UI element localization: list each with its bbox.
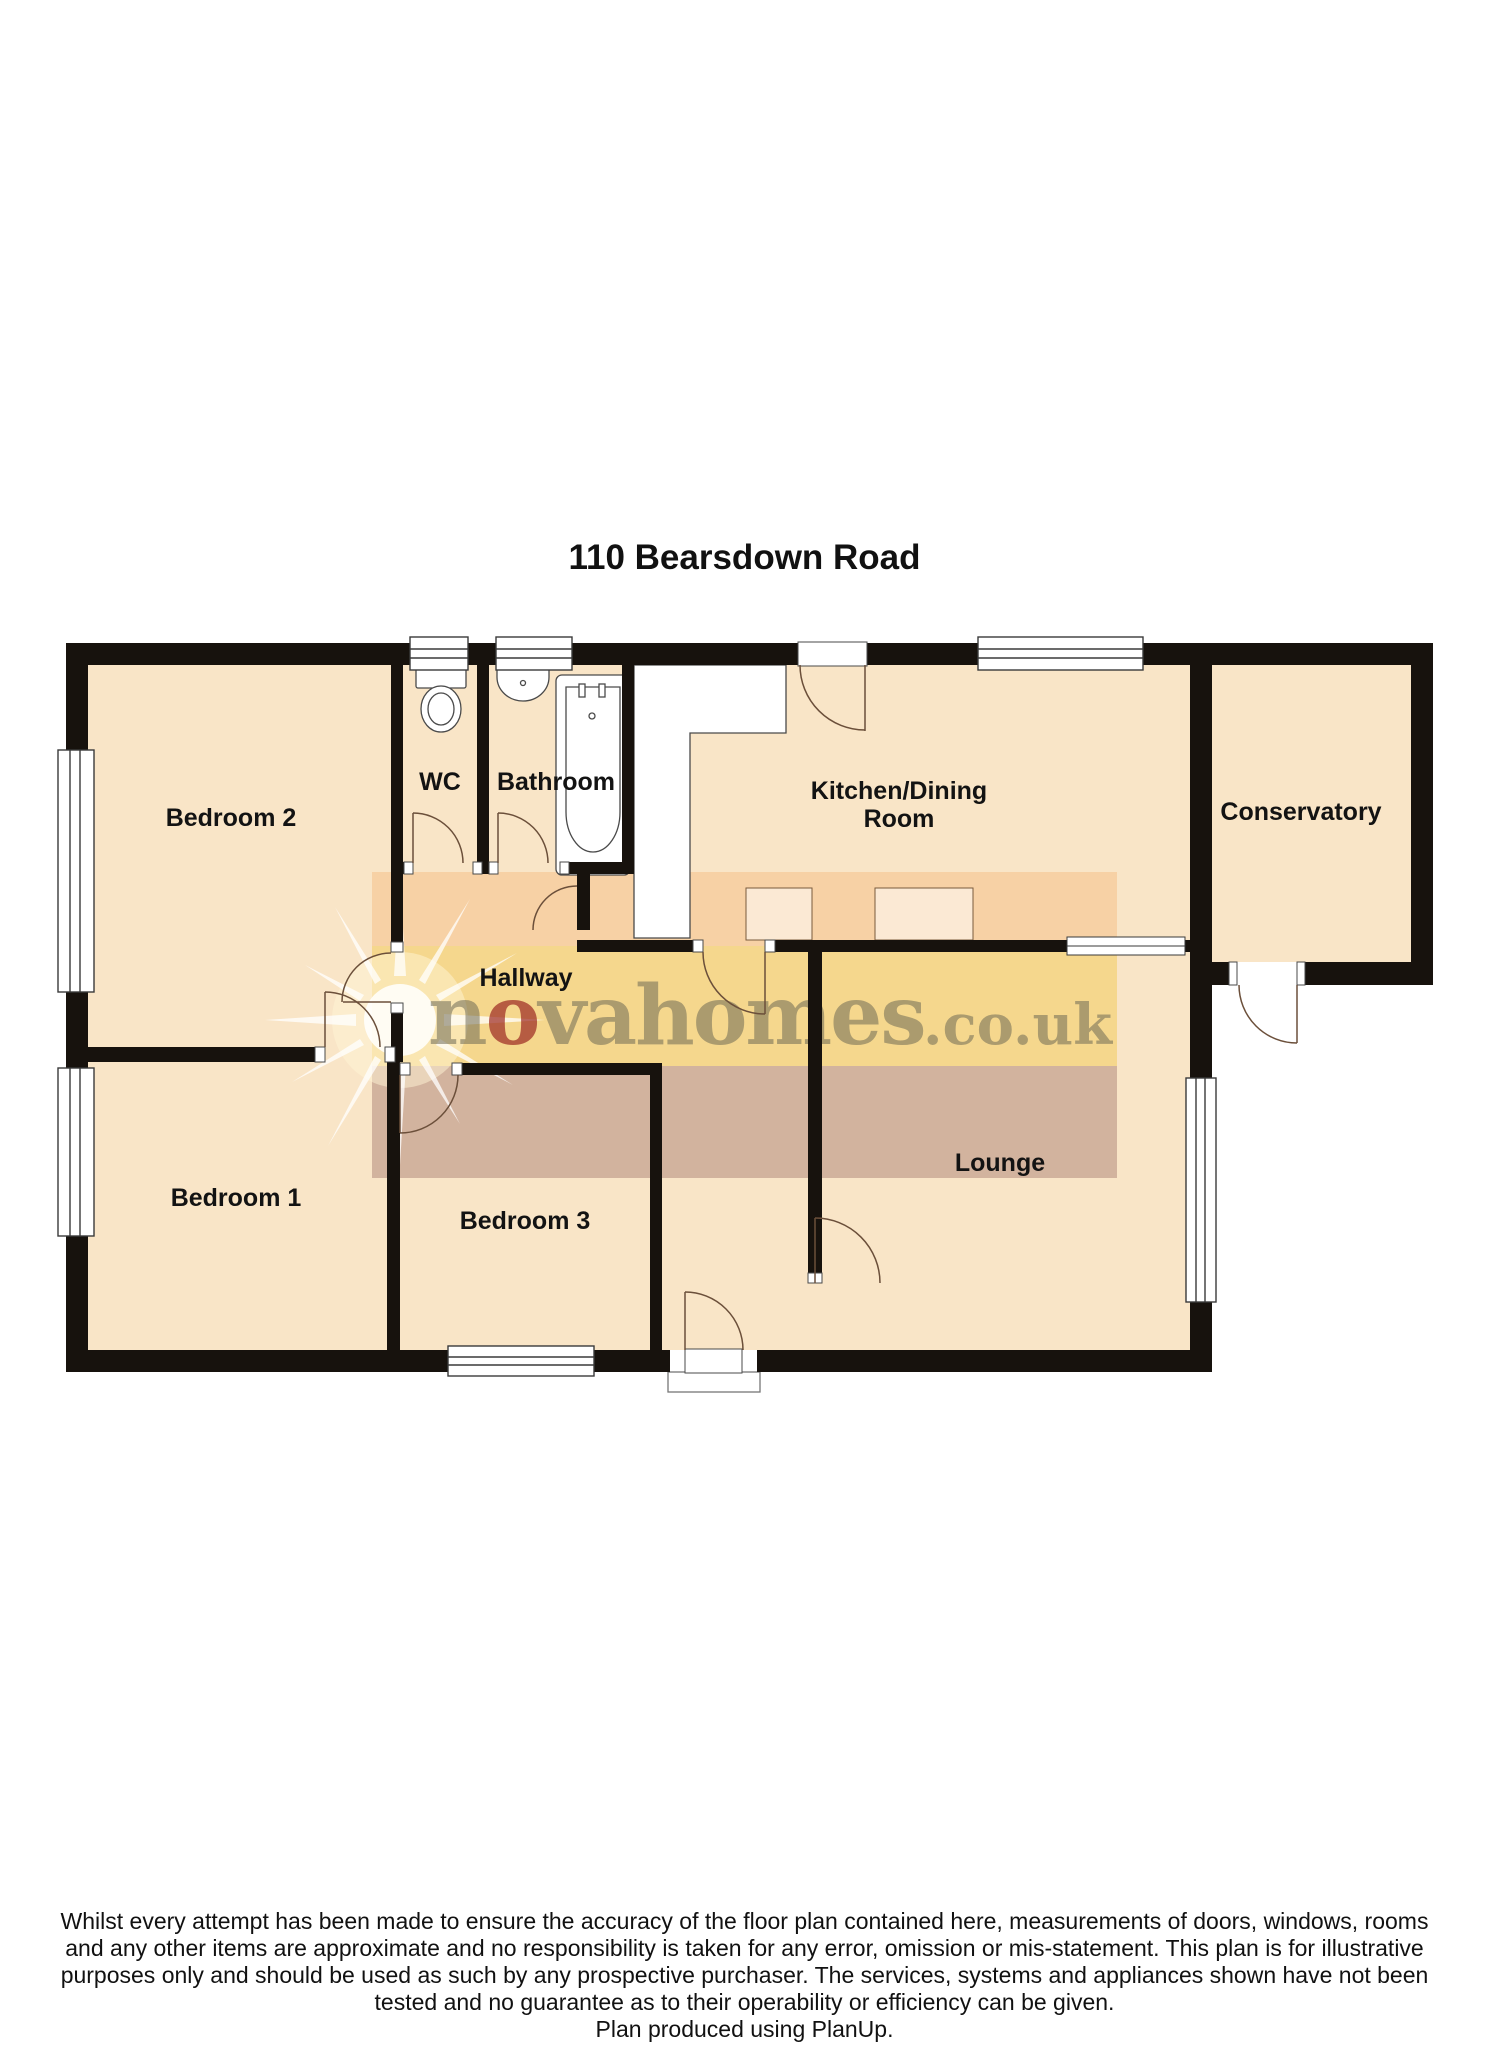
room-label-bedroom3: Bedroom 3 (460, 1207, 591, 1235)
disclaimer-line: Whilst every attempt has been made to en… (0, 1908, 1489, 1935)
toilet-icon (416, 662, 466, 732)
floorplan-svg: novahomes .co.uk (0, 0, 1489, 1550)
floorplan: novahomes .co.uk (0, 0, 1489, 1555)
room-label-hallway: Hallway (479, 964, 572, 992)
room-label-kitchen-line2: Room (864, 805, 935, 833)
door-swing-conservatory (1239, 985, 1297, 1043)
disclaimer: Whilst every attempt has been made to en… (0, 1908, 1489, 2043)
watermark-band-peach (372, 872, 1117, 946)
porch-step-icon (668, 1372, 760, 1392)
internal-window (1067, 937, 1185, 955)
room-label-bedroom1: Bedroom 1 (171, 1184, 302, 1212)
disclaimer-line-planup: Plan produced using PlanUp. (0, 2016, 1489, 2043)
window (1186, 1078, 1216, 1302)
watermark-part1: n (428, 968, 486, 1064)
back-door-opening (798, 642, 867, 666)
window (58, 1068, 94, 1236)
disclaimer-line: purposes only and should be used as such… (0, 1962, 1489, 1989)
disclaimer-line: tested and no guarantee as to their oper… (0, 1989, 1489, 2016)
room-label-conservatory: Conservatory (1220, 798, 1381, 826)
disclaimer-line: and any other items are approximate and … (0, 1935, 1489, 1962)
room-label-bedroom2: Bedroom 2 (166, 804, 297, 832)
watermark-part3: vahomes (536, 968, 924, 1064)
kitchen-unit-icon (746, 888, 812, 940)
front-door-opening (685, 1349, 742, 1373)
window (496, 637, 572, 670)
room-label-kitchen-line1: Kitchen/Dining (811, 777, 987, 805)
window (58, 750, 94, 992)
window (978, 637, 1143, 670)
kitchen-unit-icon (875, 888, 973, 940)
room-label-lounge: Lounge (955, 1149, 1045, 1177)
window (410, 637, 468, 670)
room-label-wc: WC (419, 768, 461, 796)
room-label-bathroom: Bathroom (497, 768, 615, 796)
watermark-suffix: .co.uk (923, 992, 1113, 1058)
window (448, 1346, 594, 1376)
